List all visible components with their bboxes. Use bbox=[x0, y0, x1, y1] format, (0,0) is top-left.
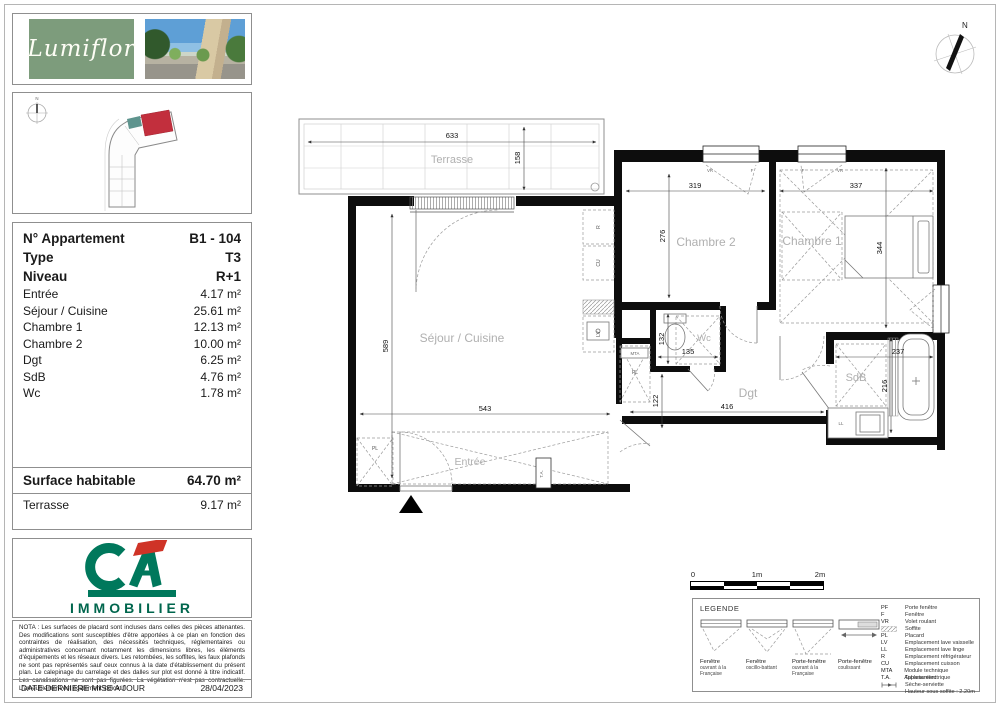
svg-text:MTA: MTA bbox=[631, 351, 640, 356]
dim-terrasse-depth: 158 bbox=[513, 152, 522, 165]
legend-window-type: Fenêtre ouvrant à la Française bbox=[700, 619, 744, 677]
legend-row: FFenêtre bbox=[881, 612, 924, 619]
room-area-row: Chambre 210.00 m² bbox=[23, 336, 241, 353]
svg-text:122: 122 bbox=[651, 395, 660, 408]
svg-text:416: 416 bbox=[721, 402, 734, 411]
legend-row: REmplacement réfrigérateur bbox=[881, 654, 971, 661]
chambre1-label: Chambre 1 bbox=[782, 234, 842, 248]
brand-header: Lumiflor bbox=[12, 13, 252, 85]
scale-tick: 0 bbox=[691, 570, 695, 579]
room-area-row: Dgt6.25 m² bbox=[23, 352, 241, 369]
svg-text:337: 337 bbox=[850, 181, 863, 190]
entrance-marker bbox=[399, 495, 423, 513]
sejour-label: Séjour / Cuisine bbox=[420, 331, 505, 345]
legend-row: T.A.Tableau électrique bbox=[881, 675, 950, 682]
legend-window-type: Porte-fenêtre coulissant bbox=[838, 619, 882, 671]
legend-row: PLPlacard bbox=[881, 633, 924, 640]
info-row: TypeT3 bbox=[23, 248, 241, 267]
svg-text:135: 135 bbox=[682, 347, 695, 356]
vanity-icon: LL bbox=[828, 408, 888, 438]
svg-text:PL: PL bbox=[372, 446, 378, 452]
seche-serviette-icon bbox=[881, 682, 897, 688]
entree-label: Entrée bbox=[455, 456, 486, 468]
svg-text:543: 543 bbox=[479, 404, 492, 413]
legend-window-type: Porte-fenêtre ouvrant à la Française bbox=[792, 619, 836, 677]
svg-text:LV: LV bbox=[596, 330, 602, 336]
room-area-row: Séjour / Cuisine25.61 m² bbox=[23, 303, 241, 320]
legend-row: CUEmplacement cuisson bbox=[881, 661, 960, 668]
svg-text:276: 276 bbox=[658, 230, 667, 243]
scale-bar: 0 1m 2m bbox=[690, 570, 824, 592]
svg-text:216: 216 bbox=[880, 380, 889, 393]
floor-plan: Terrasse 633 158 bbox=[290, 100, 996, 540]
residence-photo bbox=[145, 19, 245, 79]
lumiflor-logo: Lumiflor bbox=[29, 19, 134, 79]
highlighted-unit bbox=[141, 110, 173, 136]
divider bbox=[13, 467, 251, 468]
sdb-label: SdB bbox=[846, 372, 867, 384]
north-label: N bbox=[962, 21, 968, 30]
plan-compass-icon: N bbox=[922, 14, 990, 82]
scale-tick: 2m bbox=[815, 570, 825, 579]
window-chambre1: F VR bbox=[798, 146, 846, 192]
legend-row: PFPorte fenêtre bbox=[881, 605, 937, 612]
credit-agricole-logo-icon bbox=[76, 540, 188, 598]
room-area-row: Wc1.78 m² bbox=[23, 385, 241, 402]
svg-text:R: R bbox=[596, 225, 602, 229]
legend-window-type: Fenêtre oscillo-battant bbox=[746, 619, 790, 671]
wc-label: Wc bbox=[697, 333, 711, 344]
spacer bbox=[23, 402, 241, 464]
svg-text:VR: VR bbox=[837, 168, 843, 173]
svg-text:344: 344 bbox=[875, 242, 884, 255]
bed-icon bbox=[845, 216, 933, 278]
svg-text:PL: PL bbox=[632, 370, 638, 376]
room-area-row: Chambre 112.13 m² bbox=[23, 319, 241, 336]
porte-fenetre-francaise-icon bbox=[792, 619, 834, 655]
building-footprint bbox=[105, 110, 177, 211]
svg-text:LL: LL bbox=[839, 421, 844, 426]
legend: LEGENDE Fenêtre ouvrant à la Française F… bbox=[692, 598, 980, 692]
divider bbox=[13, 493, 251, 494]
agency-logo-box: IMMOBILIER bbox=[12, 538, 252, 618]
svg-text:319: 319 bbox=[689, 181, 702, 190]
legend-row: LLEmplacement lave linge bbox=[881, 647, 964, 654]
agency-name: IMMOBILIER bbox=[70, 600, 194, 616]
chambre2-label: Chambre 2 bbox=[676, 235, 736, 249]
kitchen-units: R CU LV bbox=[583, 210, 614, 352]
nota-box: NOTA : Les surfaces de placard sont incl… bbox=[12, 620, 252, 698]
date-value: 28/04/2023 bbox=[200, 683, 243, 693]
window-chambre2: VR F bbox=[703, 146, 759, 194]
svg-text:F: F bbox=[802, 168, 805, 173]
scale-tick: 1m bbox=[752, 570, 762, 579]
terrasse-label: Terrasse bbox=[431, 154, 473, 166]
site-plan-compass-icon: N bbox=[26, 96, 48, 124]
legend-row: LVEmplacement lave vaisselle bbox=[881, 640, 974, 647]
legend-row: Hauteur sous soffite : 2.20m bbox=[881, 689, 975, 696]
surface-habitable-row: Surface habitable64.70 m² bbox=[23, 471, 241, 490]
site-plan-drawing: N bbox=[13, 93, 251, 213]
toilet-icon bbox=[664, 314, 686, 350]
svg-text:589: 589 bbox=[381, 340, 390, 353]
fenetre-oscillo-icon bbox=[746, 619, 788, 655]
window-sdb-side bbox=[910, 285, 949, 333]
room-area-row: SdB4.76 m² bbox=[23, 369, 241, 386]
dgt-label: Dgt bbox=[739, 386, 758, 400]
terrasse-area-row: Terrasse9.17 m² bbox=[23, 497, 241, 514]
date-label: DATE DERNIERE MISE A JOUR bbox=[21, 683, 145, 693]
porte-fenetre-coulissante bbox=[410, 197, 514, 212]
site-plan: N bbox=[12, 92, 252, 214]
tableau-electrique-box: T.A. bbox=[536, 458, 551, 488]
svg-text:F: F bbox=[751, 168, 754, 173]
svg-text:CU: CU bbox=[596, 259, 602, 267]
svg-text:T.A.: T.A. bbox=[539, 470, 544, 478]
legend-row: VRVolet roulant bbox=[881, 619, 936, 626]
scale-bar-strip bbox=[690, 581, 824, 590]
room-area-row: Entrée4.17 m² bbox=[23, 286, 241, 303]
lumiflor-logo-text: Lumiflor bbox=[28, 36, 136, 62]
dim-terrasse-width: 633 bbox=[446, 131, 459, 140]
info-row: NiveauR+1 bbox=[23, 267, 241, 286]
terrasse-zone: Terrasse 633 158 bbox=[299, 119, 604, 194]
legend-title: LEGENDE bbox=[700, 604, 739, 613]
soffite-hatch bbox=[583, 300, 614, 314]
info-row: N° AppartementB1 - 104 bbox=[23, 229, 241, 248]
fenetre-francaise-icon bbox=[700, 619, 742, 655]
apartment-info-panel: N° AppartementB1 - 104 TypeT3 NiveauR+1 … bbox=[12, 222, 252, 530]
svg-text:132: 132 bbox=[657, 333, 666, 346]
svg-text:237: 237 bbox=[892, 347, 905, 356]
porte-fenetre-coulissante-icon bbox=[838, 619, 880, 655]
svg-text:VR: VR bbox=[707, 168, 713, 173]
svg-text:N: N bbox=[35, 96, 38, 101]
date-row: DATE DERNIERE MISE A JOUR 28/04/2023 bbox=[13, 679, 251, 697]
soffite-icon bbox=[881, 626, 897, 632]
